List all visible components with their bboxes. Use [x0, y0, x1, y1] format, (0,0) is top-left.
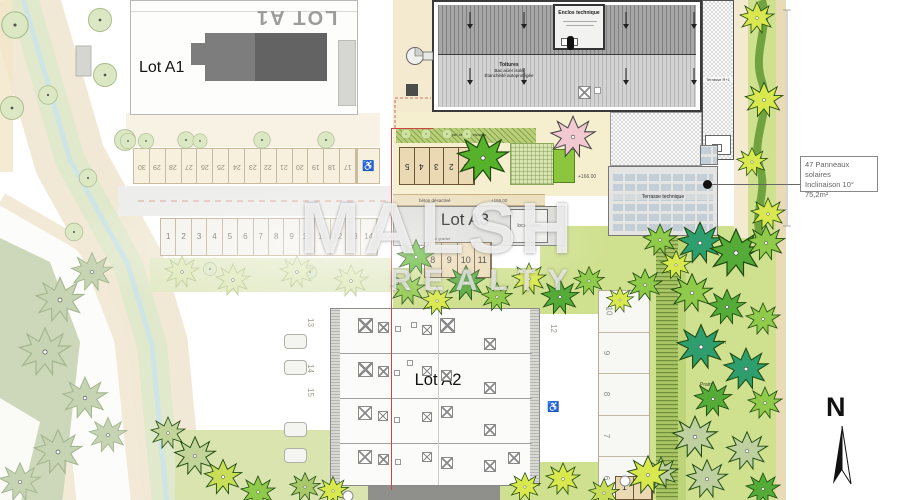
space-14: 14 [306, 364, 315, 373]
parking-space: 8 [599, 374, 649, 416]
dimension-line [783, 10, 791, 226]
technical-box [406, 84, 418, 96]
site-plan: LOT A1 Lot A1 30292827262524232221201918… [0, 0, 900, 500]
dock-2 [284, 360, 307, 375]
wheelchair-icon-a2: ♿ [547, 402, 559, 413]
roof-note: Toitures Bac acier isolé Étanchéité auto… [454, 62, 564, 78]
parking-space: 17 [340, 149, 356, 183]
parking-space: 2 [634, 477, 652, 499]
parking-space: 1 [616, 477, 634, 499]
lot-a1-label: Lot A1 [139, 59, 184, 77]
parking-space: 4 [415, 148, 430, 184]
dock-strip-a2 [368, 486, 500, 500]
noue-label: noue d'infiltration [688, 340, 726, 346]
north-label: N [826, 392, 846, 423]
hedge-wavy [757, 0, 764, 238]
space-13: 13 [306, 318, 315, 327]
parking-col-right: 109876 [598, 290, 650, 500]
enclos-label: Enclos technique [555, 10, 603, 16]
parking-space: 20 [293, 149, 309, 183]
hedge-band-b [510, 143, 554, 185]
small-building-faded [76, 46, 91, 76]
hedge-band-right [656, 238, 686, 500]
massif-label: massif arbustif vivaces [396, 132, 536, 137]
parking-space: 28 [166, 149, 182, 183]
wheelchair-icon: ♿ [362, 161, 374, 172]
parking-space: 9 [599, 333, 649, 375]
lot-a1-big-label: LOT A1 [255, 5, 337, 28]
rooflight [578, 86, 591, 99]
parking-space: 27 [182, 149, 198, 183]
building-top: Enclos technique Toitures Bac acier isol… [432, 0, 702, 112]
parking-row-a1: 3029282726252423222120191817 [133, 148, 357, 184]
rooflight [358, 318, 373, 333]
parking-space: 24 [229, 149, 245, 183]
accessible-space-a1: ♿ [357, 148, 380, 184]
sidewalk-a1 [126, 113, 380, 147]
parking-space: 5 [400, 148, 415, 184]
parking-space: 3 [430, 148, 445, 184]
dock-3 [284, 422, 307, 437]
dock-4 [284, 448, 307, 463]
parking-space: 29 [150, 149, 166, 183]
prairie-label: Prairie [700, 382, 714, 388]
lawn-patch [553, 149, 575, 183]
parking-space: 22 [261, 149, 277, 183]
parking-space: 19 [308, 149, 324, 183]
terrasse-r1-label: Terrasse R+1 [703, 77, 733, 82]
parking-space: 2 [444, 148, 459, 184]
solar-callout-dot [703, 180, 712, 189]
parking-space: 7 [599, 416, 649, 458]
space-15: 15 [306, 388, 315, 397]
watermark-wash [70, 180, 610, 310]
parking-space: 18 [324, 149, 340, 183]
solar-annotation: 47 Panneaux solaires Inclinaison 10° 75,… [800, 156, 878, 192]
parking-bottom-right: 12 [615, 476, 653, 500]
space-12: 12 [549, 324, 558, 333]
parking-space: 25 [213, 149, 229, 183]
parking-space: 23 [245, 149, 261, 183]
parking-space: 1 [459, 148, 474, 184]
terrace-r1-strip: Terrasse R+1 [702, 0, 734, 160]
solar-array: Terrasse technique [608, 166, 718, 236]
lot-a2-label: Lot A2 [388, 371, 488, 390]
hedge-band-a: massif arbustif vivaces [396, 128, 536, 143]
dock-1 [284, 334, 307, 349]
roof-access-marker [567, 36, 574, 50]
north-arrow [831, 424, 853, 488]
terrasse-technique-label: Terrasse technique [609, 194, 717, 200]
terrace-lower [610, 112, 702, 166]
parking-space: 30 [134, 149, 150, 183]
building-a1-wing [338, 40, 356, 106]
solar-callout-line [712, 184, 800, 185]
parking-space: 21 [277, 149, 293, 183]
building-lot-a1: LOT A1 Lot A1 [130, 0, 358, 115]
enclos-technique-box: Enclos technique [553, 4, 605, 50]
parking-space: 26 [197, 149, 213, 183]
